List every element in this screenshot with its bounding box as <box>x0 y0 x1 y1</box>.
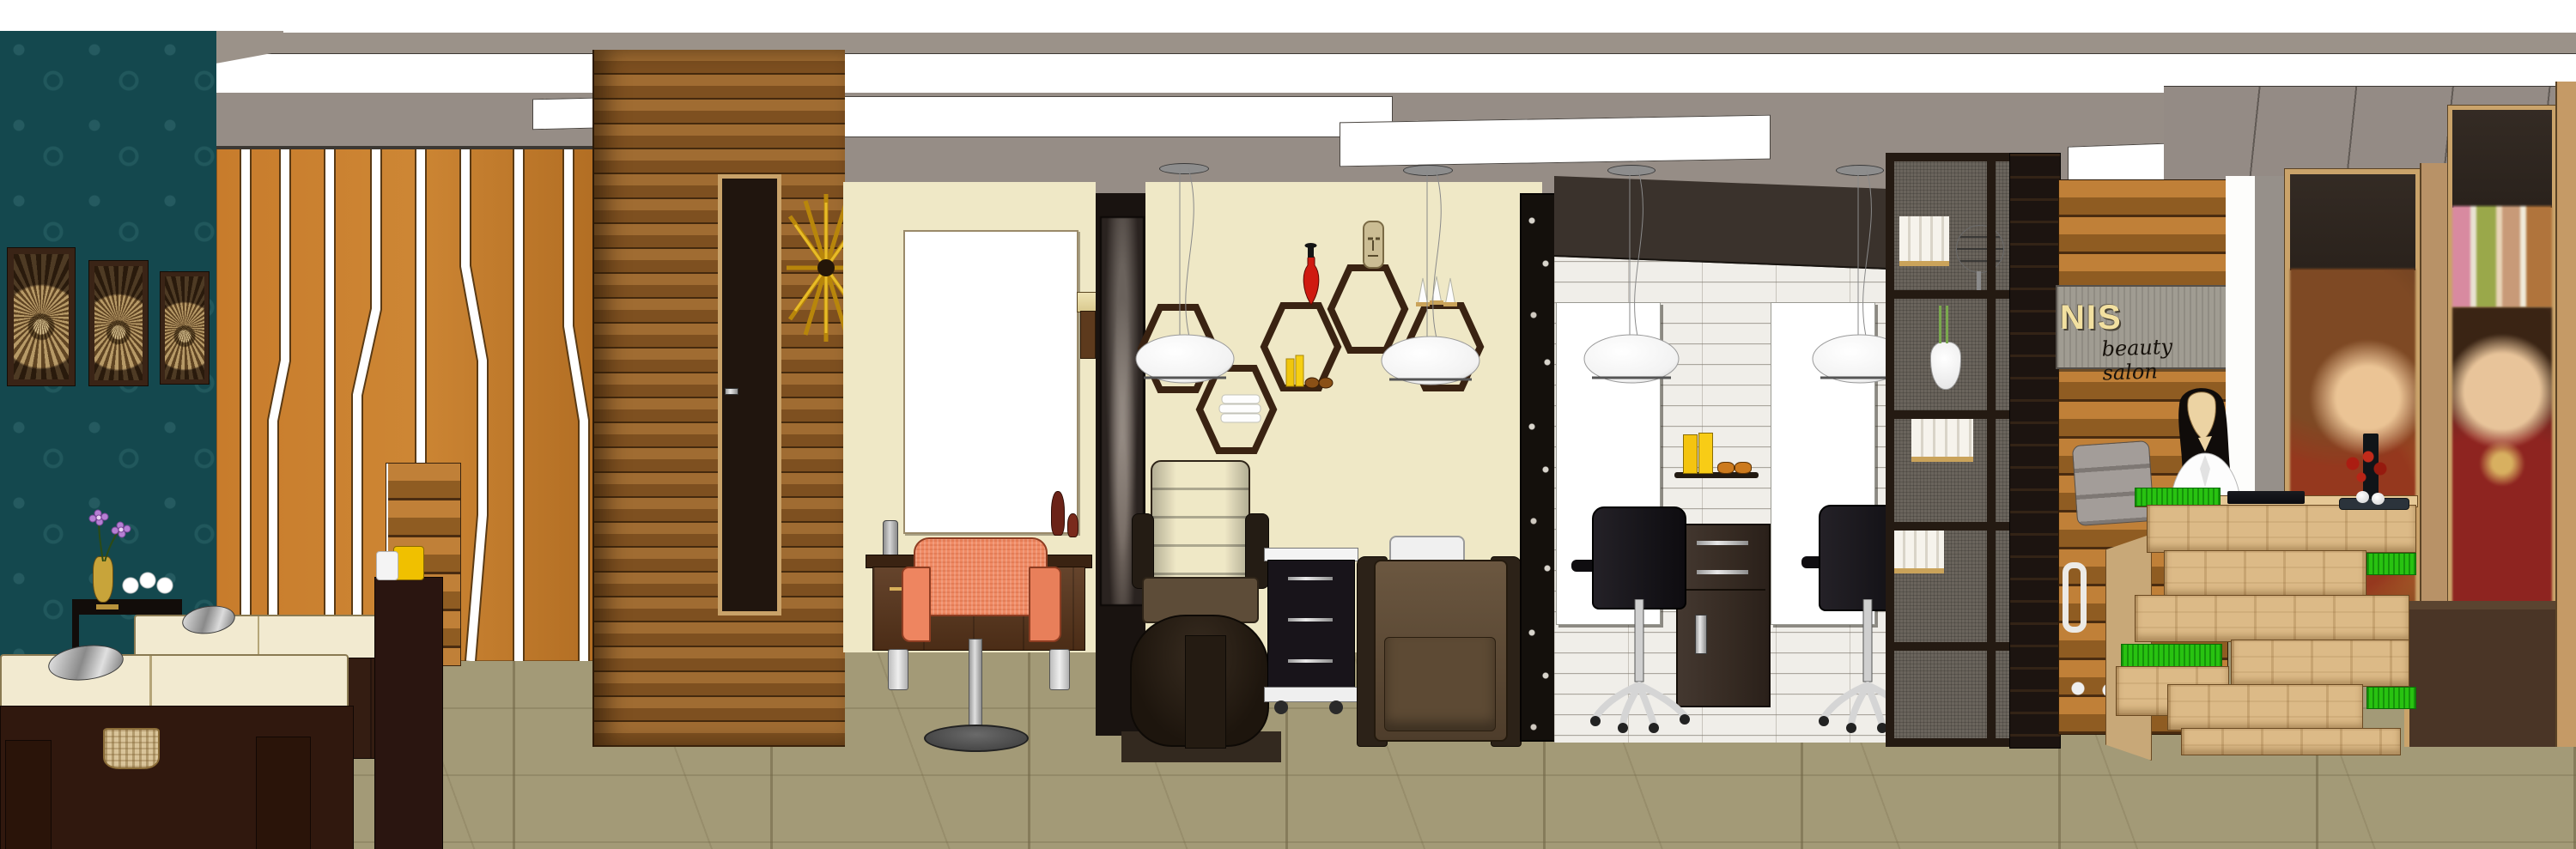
drawer-cart-handle-3 <box>1288 659 1333 663</box>
styling-chair-black-1-back <box>1592 506 1686 609</box>
office-chair-cushions <box>2072 440 2154 526</box>
poster-2-spa-collage <box>2452 206 2552 307</box>
shelf-candle-1 <box>1683 434 1698 474</box>
pendant-lamp-1-graphic <box>1132 168 1238 385</box>
wall-art-frame-3 <box>160 271 210 385</box>
ceiling-panel-3 <box>1340 115 1771 167</box>
desk-grass-top-left <box>2135 488 2221 506</box>
pendant-lamp-3 <box>1582 170 1685 386</box>
massage-table-near-leg-right <box>256 737 311 849</box>
ceiling-panel-2 <box>756 96 1393 137</box>
vanity-vase-tall <box>1051 491 1065 536</box>
cabinet-handle-1 <box>1697 541 1748 545</box>
trolley-towels <box>120 570 182 601</box>
pedicure-chair-back <box>1151 460 1250 585</box>
towel-console <box>374 577 443 849</box>
pendant-lamp-2-graphic <box>1377 170 1484 386</box>
desk-block-5 <box>2167 684 2363 731</box>
styling-chair-black-1-base <box>1589 599 1692 733</box>
drawer-cart-base <box>1264 687 1358 702</box>
wainscot-panels <box>2404 601 2576 747</box>
desk-laptop <box>2227 491 2305 504</box>
desk-grass-right-2 <box>2366 687 2416 709</box>
desk-white-ball-1 <box>2356 491 2369 503</box>
wall-art-1 <box>14 254 69 379</box>
poster-1-blind <box>2290 174 2415 270</box>
brand-sign-text: NIS <box>2060 299 2163 337</box>
orchid-graphic <box>74 505 134 561</box>
pedicure-footrest <box>1185 635 1226 749</box>
vanity-mirror <box>903 230 1078 534</box>
gray-corner-strip <box>2255 176 2286 519</box>
pendant-lamp-1 <box>1132 168 1238 385</box>
laser-cut-screen <box>1520 193 1558 742</box>
desk-block-4 <box>2231 640 2409 687</box>
ceiling-band-far <box>0 33 2576 54</box>
drawer-cart-wheel-right <box>1329 700 1343 714</box>
cabinet-door-handle <box>1695 615 1707 654</box>
desk-block-1 <box>2147 505 2416 553</box>
console-towel-white <box>376 551 398 580</box>
desk-grass-left <box>2121 644 2222 668</box>
drawer-cart-wheel-left <box>1274 700 1288 714</box>
shelf-jar-2 <box>1735 462 1752 474</box>
desk-block-6 <box>2181 728 2401 755</box>
wall-art-3 <box>165 276 204 379</box>
door-handle <box>725 388 738 395</box>
wall-art-frame-2 <box>88 260 149 386</box>
wicker-basket <box>103 728 160 769</box>
massage-table-near-leg-left <box>5 740 52 849</box>
desk-red-flowers <box>2342 448 2387 493</box>
desk-block-3 <box>2135 595 2409 642</box>
drawer-cart-handle-1 <box>1288 577 1333 580</box>
drawer-cart-handle-2 <box>1288 618 1333 622</box>
cabinet-handle-2 <box>1697 570 1748 574</box>
styling-chair-peach-wing-right <box>1029 567 1061 642</box>
shelf-jar-1 <box>1717 462 1735 474</box>
wall-sconce-right <box>1080 311 1096 359</box>
pendant-lamp-3-graphic <box>1582 170 1685 386</box>
door <box>718 174 781 616</box>
styling-chair-peach-post <box>969 639 982 735</box>
poster-2-blind <box>2452 110 2552 208</box>
desk-grass-right-1 <box>2366 553 2416 575</box>
salon-render: NIS beauty salon <box>0 0 2576 849</box>
shampoo-chair-cushion <box>1384 637 1496 731</box>
brand-sign-tagline: beauty salon <box>2101 332 2232 385</box>
office-chair-armrest <box>2063 562 2087 633</box>
wall-art-2 <box>94 266 143 380</box>
cabinet-drawer-line <box>1678 589 1765 591</box>
styling-chair-peach-back <box>914 537 1048 616</box>
vanity-vase-small <box>1067 513 1078 537</box>
trolley-gold-badge <box>96 604 118 609</box>
vanity-desk-leg-left <box>888 649 908 690</box>
pendant-lamp-2 <box>1377 170 1484 386</box>
desk-block-2 <box>2164 550 2366 597</box>
trolley-orchid <box>74 505 134 561</box>
wall-sconce-right-shade <box>1077 292 1097 312</box>
chair-base-1-graphic <box>1589 599 1692 733</box>
vanity-desk-leg-right <box>1049 649 1070 690</box>
wall-art-frame-1 <box>7 247 76 386</box>
shelf-candle-2 <box>1698 433 1713 474</box>
display-unit-corner-pillar <box>2009 153 2061 749</box>
styling-chair-peach-wing-left <box>902 567 931 642</box>
desk-white-ball-2 <box>2372 493 2385 505</box>
poster-2-bride-image <box>2452 307 2552 608</box>
styling-chair-peach-base <box>924 725 1029 752</box>
right-edge-frame <box>2555 82 2576 747</box>
trolley-flower-vase <box>93 556 113 603</box>
